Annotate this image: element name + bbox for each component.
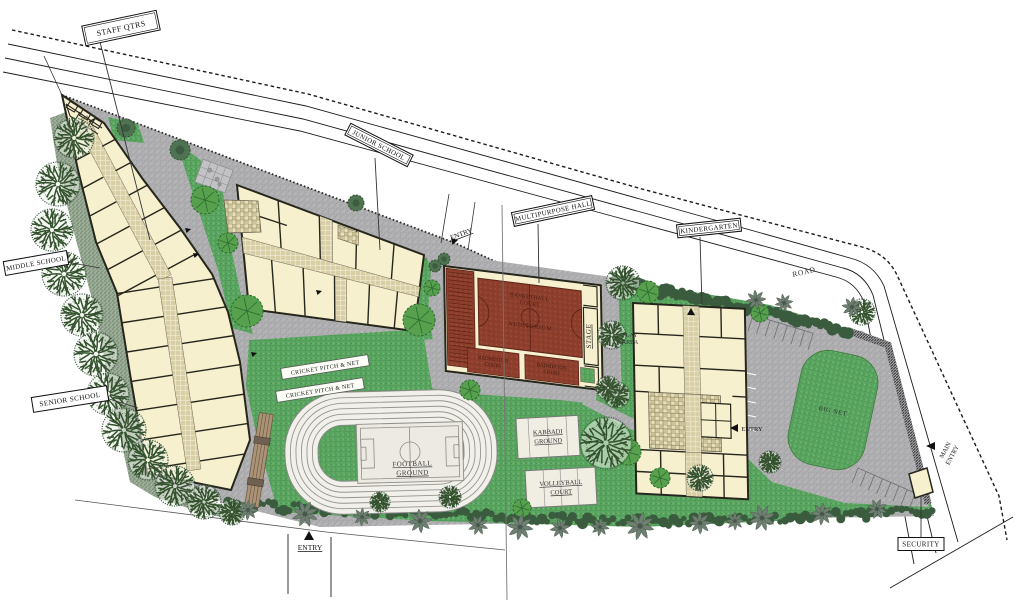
svg-text:ENTRY: ENTRY	[298, 543, 323, 552]
svg-text:SECURITY: SECURITY	[902, 541, 939, 549]
svg-text:GROUND: GROUND	[396, 469, 429, 478]
svg-text:STAGE: STAGE	[585, 323, 593, 349]
svg-text:ENTRY: ENTRY	[741, 426, 763, 433]
svg-text:PLAY: PLAY	[622, 333, 638, 339]
svg-text:AREA: AREA	[622, 340, 639, 346]
svg-text:COURT: COURT	[550, 488, 572, 496]
svg-text:FOOTBALL: FOOTBALL	[392, 459, 432, 468]
svg-text:GROUND: GROUND	[534, 437, 562, 445]
